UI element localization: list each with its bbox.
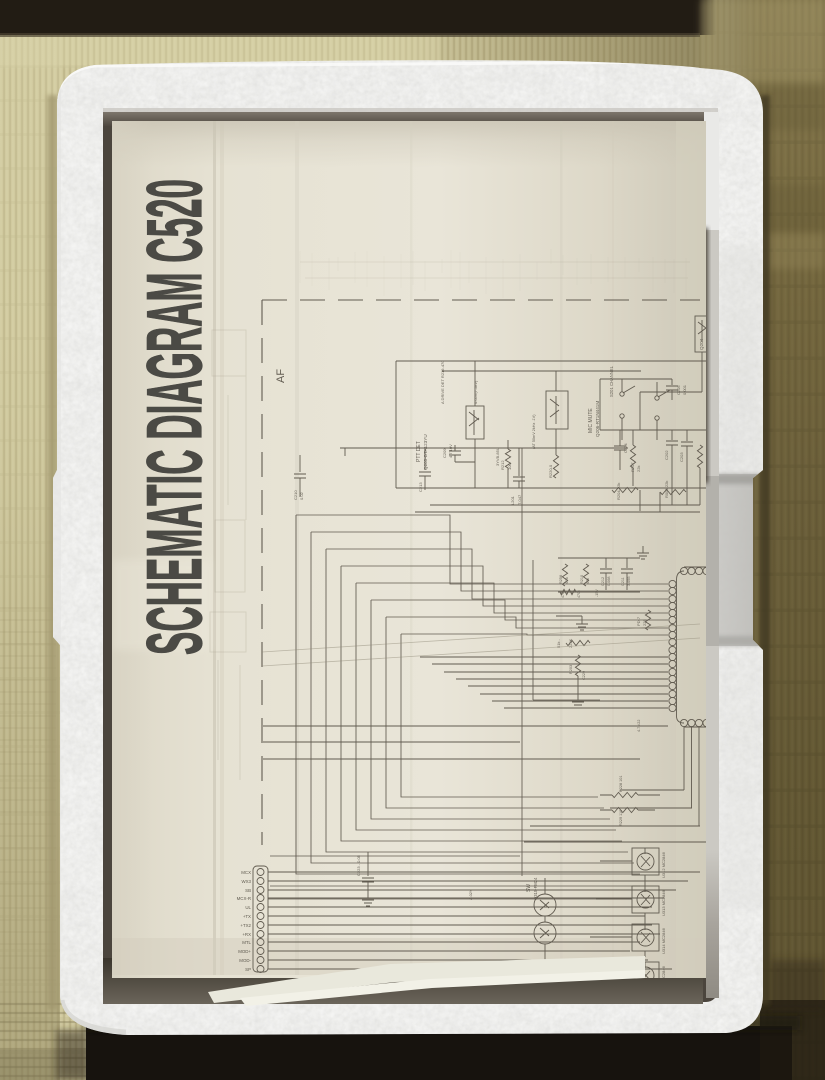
svg-text:C212: C212 [601,577,605,586]
svg-text:4.7 10V: 4.7 10V [448,444,453,458]
svg-text:C223 - 0.05: C223 - 0.05 [356,854,361,876]
svg-text:MOD-: MOD- [239,958,251,963]
svg-text:SP: SP [245,967,251,972]
svg-text:R258: R258 [559,575,563,584]
svg-text:MOD+: MOD+ [238,949,251,954]
svg-text:WX3: WX3 [241,879,251,884]
svg-text:MCX: MCX [241,870,251,875]
svg-text:C224: C224 [623,443,628,453]
svg-text:R203: R203 [569,665,573,674]
svg-text:L201: L201 [510,495,515,505]
svg-text:UL: UL [245,905,251,910]
svg-text:U312 MC2846: U312 MC2846 [661,851,666,878]
svg-text:R210: R210 [580,575,584,584]
svg-text:AF: AF [275,369,287,383]
svg-text:47k: 47k [586,578,590,584]
svg-text:R229 110: R229 110 [619,810,623,826]
svg-text:3.055: 3.055 [627,576,631,586]
svg-text:C202: C202 [664,450,669,460]
svg-text:R212: R212 [500,460,505,470]
svg-text:+TX: +TX [243,914,251,919]
svg-text:(AT 50mV 2kHz .1V): (AT 50mV 2kHz .1V) [532,414,536,449]
svg-text:S201 CHANNEL: S201 CHANNEL [609,365,614,397]
svg-text:SW: SW [526,884,532,892]
svg-text:R220-0: R220-0 [548,464,553,478]
svg-text:Q206-RT1N441M: Q206-RT1N441M [595,401,600,437]
svg-text:U314 MC2846: U314 MC2846 [661,927,666,954]
svg-text:22k: 22k [636,466,641,472]
svg-text:C211: C211 [621,577,625,586]
svg-text:Q204: Q204 [699,338,704,350]
svg-text:SB: SB [245,888,251,893]
svg-text:A DRIVE DET R219-470: A DRIVE DET R219-470 [440,360,445,404]
svg-text:C205: C205 [676,385,681,395]
svg-text:C209: C209 [442,448,447,458]
svg-text:R207: R207 [630,462,635,472]
svg-text:0.001: 0.001 [682,384,687,395]
svg-text:0.05V(7.5kV): 0.05V(7.5kV) [473,380,478,404]
svg-text:T-047: T-047 [517,494,522,505]
svg-text:Q315-FM24: Q315-FM24 [533,877,538,900]
svg-text:C203: C203 [679,452,684,462]
svg-text:0.068: 0.068 [607,576,611,586]
svg-text:PD-7: PD-7 [636,616,641,626]
svg-text:C210: C210 [293,490,298,500]
svg-text:A.02Y: A.02Y [469,889,473,900]
svg-text:MCX-R: MCX-R [237,896,251,901]
svg-text:U313 MC2846: U313 MC2846 [661,889,666,916]
svg-text:C213: C213 [418,482,423,492]
svg-text:4.7k/22: 4.7k/22 [637,720,641,732]
svg-text:R004-22k: R004-22k [664,481,669,498]
svg-text:MIC MUTE: MIC MUTE [588,408,594,433]
svg-text:MTL: MTL [242,940,251,945]
svg-text:SCHEMATIC DIAGRAM C520: SCHEMATIC DIAGRAM C520 [130,179,218,655]
svg-text:4.7k: 4.7k [565,577,569,584]
svg-text:0.02: 0.02 [299,491,304,500]
svg-text:3YVB.85U: 3YVB.85U [495,447,500,466]
svg-text:R228 101: R228 101 [619,776,623,792]
svg-text:PTT DET: PTT DET [416,441,422,462]
svg-text:R204-22k: R204-22k [616,483,621,500]
svg-text:100: 100 [507,463,512,470]
svg-text:+RX: +RX [242,932,251,937]
svg-text:Q205-DTA123YU: Q205-DTA123YU [423,434,428,470]
svg-text:+TX2: +TX2 [240,923,251,928]
svg-text:-15V: -15V [595,589,599,597]
